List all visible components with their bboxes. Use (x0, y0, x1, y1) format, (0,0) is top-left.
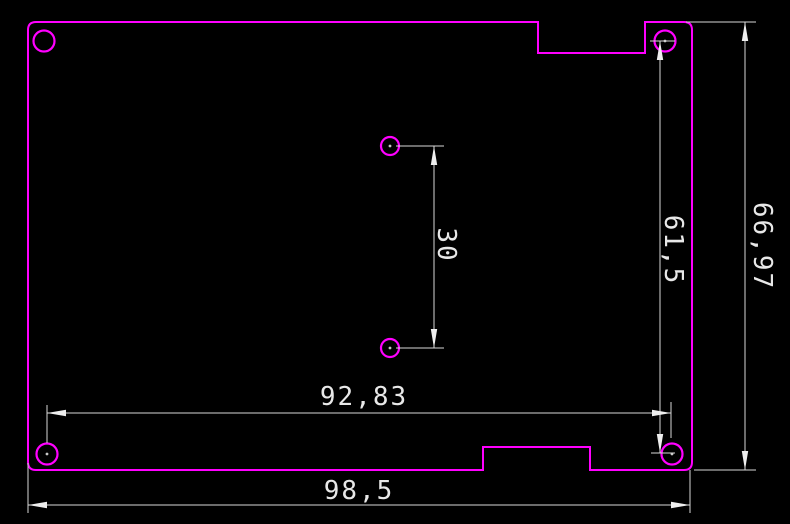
cad-drawing-canvas: 30 61,5 66,97 92,83 98,5 (0, 0, 790, 524)
dimension-label-hole-pitch: 30 (432, 175, 460, 315)
dimension-arrowheads (28, 22, 748, 508)
dimension-label-overall-width: 98,5 (289, 477, 429, 505)
dimension-label-overall-height: 66,97 (748, 176, 776, 316)
dimension-label-right-hole-span: 61,5 (659, 180, 687, 320)
dimension-lines (28, 22, 745, 505)
extension-lines (28, 22, 756, 513)
mounting-hole-top-left (34, 31, 55, 52)
dimension-label-bottom-hole-span: 92,83 (294, 383, 434, 411)
